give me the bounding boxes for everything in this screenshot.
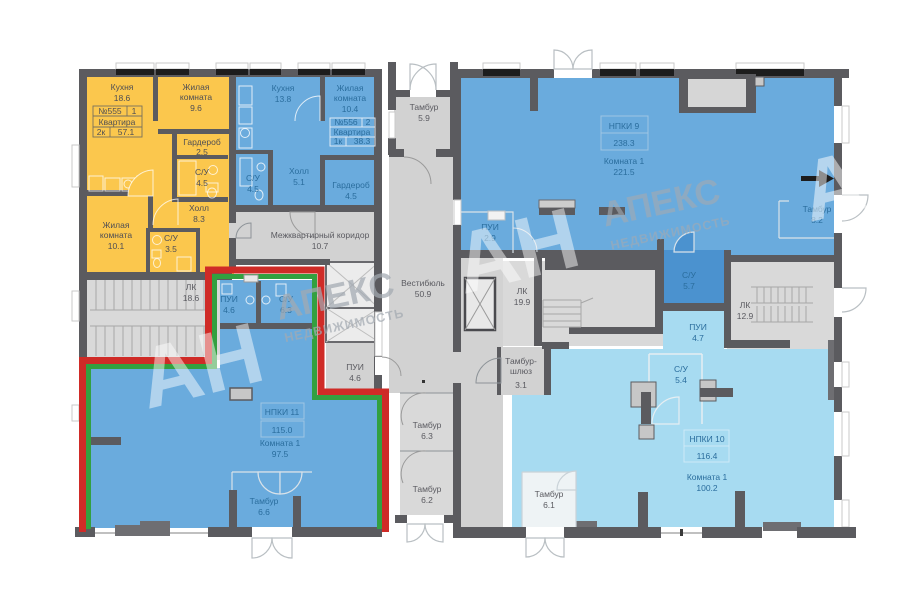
svg-text:Межквартирный коридор: Межквартирный коридор (271, 230, 370, 240)
svg-text:Тамбур: Тамбур (413, 420, 442, 430)
svg-text:ПУИ: ПУИ (220, 294, 238, 304)
svg-text:НПКИ 9: НПКИ 9 (609, 121, 640, 131)
svg-text:57.1: 57.1 (118, 127, 135, 137)
svg-text:4.7: 4.7 (692, 333, 704, 343)
svg-text:6.1: 6.1 (543, 500, 555, 510)
svg-text:9.6: 9.6 (190, 103, 202, 113)
svg-text:Комната 1: Комната 1 (260, 438, 301, 448)
svg-text:Тамбур: Тамбур (535, 489, 564, 499)
svg-text:Гардероб: Гардероб (183, 137, 221, 147)
svg-text:5.7: 5.7 (683, 281, 695, 291)
svg-text:НПКИ 10: НПКИ 10 (689, 434, 724, 444)
svg-text:3.1: 3.1 (515, 380, 527, 390)
svg-text:238.3: 238.3 (613, 138, 635, 148)
svg-text:1: 1 (132, 106, 137, 116)
svg-text:6.3: 6.3 (421, 431, 433, 441)
svg-text:С/У: С/У (164, 233, 179, 243)
svg-text:2.5: 2.5 (196, 147, 208, 157)
svg-text:Жилая: Жилая (103, 220, 130, 230)
svg-text:ЛК: ЛК (740, 300, 751, 310)
svg-text:С/У: С/У (682, 270, 697, 280)
svg-text:С/У: С/У (246, 173, 261, 183)
svg-text:С/У: С/У (674, 364, 689, 374)
svg-text:13.8: 13.8 (275, 94, 292, 104)
svg-text:№556: №556 (334, 117, 358, 127)
svg-text:ПУИ: ПУИ (346, 362, 364, 372)
svg-text:Кухня: Кухня (111, 82, 134, 92)
svg-text:4.5: 4.5 (196, 178, 208, 188)
svg-text:Гардероб: Гардероб (332, 180, 370, 190)
svg-text:221.5: 221.5 (613, 167, 635, 177)
svg-text:Квартира: Квартира (99, 117, 136, 127)
svg-text:Комната 1: Комната 1 (687, 472, 728, 482)
svg-text:10.1: 10.1 (108, 241, 125, 251)
svg-text:5.9: 5.9 (418, 113, 430, 123)
svg-text:12.9: 12.9 (737, 311, 754, 321)
svg-text:№555: №555 (98, 106, 122, 116)
svg-text:Кухня: Кухня (272, 83, 295, 93)
svg-text:комната: комната (180, 92, 212, 102)
svg-text:2к: 2к (97, 127, 106, 137)
svg-text:комната: комната (334, 93, 366, 103)
svg-text:100.2: 100.2 (696, 483, 718, 493)
svg-text:ПУИ: ПУИ (689, 322, 707, 332)
svg-text:шлюз: шлюз (510, 366, 532, 376)
svg-text:3.5: 3.5 (165, 244, 177, 254)
svg-text:комната: комната (100, 230, 132, 240)
svg-text:6.6: 6.6 (258, 507, 270, 517)
svg-text:С/У: С/У (195, 167, 210, 177)
svg-text:Тамбур: Тамбур (410, 102, 439, 112)
svg-text:5.4: 5.4 (675, 375, 687, 385)
svg-text:18.6: 18.6 (183, 293, 200, 303)
svg-text:10.4: 10.4 (342, 104, 359, 114)
svg-text:115.0: 115.0 (272, 425, 293, 435)
svg-text:1к: 1к (334, 136, 343, 146)
svg-text:Холл: Холл (289, 166, 309, 176)
svg-text:18.6: 18.6 (114, 93, 131, 103)
svg-text:Комната 1: Комната 1 (604, 156, 645, 166)
svg-text:ЛК: ЛК (186, 282, 197, 292)
svg-text:50.9: 50.9 (415, 289, 432, 299)
svg-text:Холл: Холл (189, 203, 209, 213)
svg-text:6.2: 6.2 (421, 495, 433, 505)
svg-text:Жилая: Жилая (183, 82, 210, 92)
svg-text:4.5: 4.5 (345, 191, 357, 201)
svg-text:Тамбур: Тамбур (250, 496, 279, 506)
svg-text:Вестибюль: Вестибюль (401, 278, 445, 288)
svg-text:10.7: 10.7 (312, 241, 329, 251)
svg-text:5.1: 5.1 (293, 177, 305, 187)
svg-text:38.3: 38.3 (354, 136, 371, 146)
svg-text:116.4: 116.4 (697, 451, 718, 461)
svg-text:Тамбур: Тамбур (413, 484, 442, 494)
svg-text:4.6: 4.6 (349, 373, 361, 383)
svg-text:4.5: 4.5 (247, 184, 259, 194)
svg-text:8.3: 8.3 (193, 214, 205, 224)
svg-text:2: 2 (366, 117, 371, 127)
svg-text:Тамбур-: Тамбур- (505, 356, 537, 366)
svg-text:97.5: 97.5 (272, 449, 289, 459)
svg-text:Жилая: Жилая (337, 83, 364, 93)
svg-text:НПКИ 11: НПКИ 11 (265, 407, 300, 417)
